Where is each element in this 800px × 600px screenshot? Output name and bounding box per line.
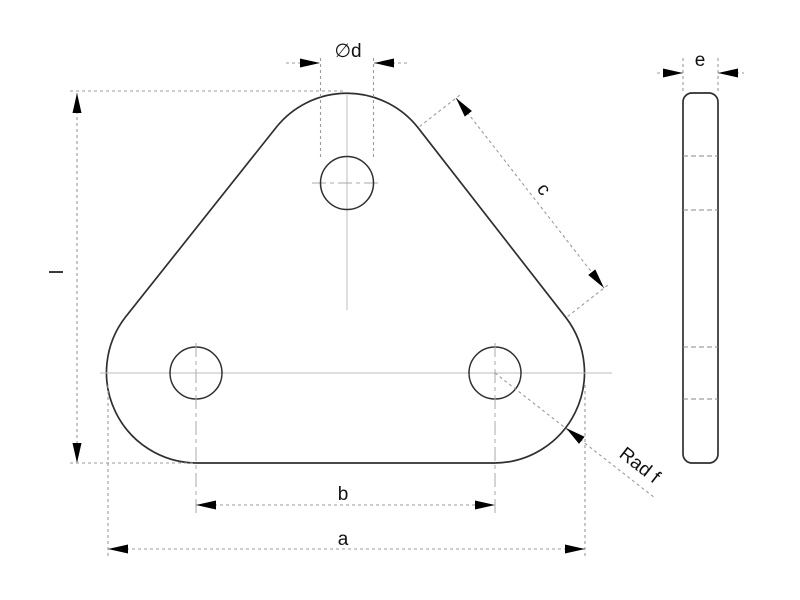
label-edge-length: c bbox=[532, 179, 554, 199]
arrowhead bbox=[565, 545, 585, 554]
arrowhead bbox=[73, 93, 82, 113]
arrowhead bbox=[73, 443, 82, 463]
extension-line bbox=[568, 284, 610, 317]
arrowhead bbox=[300, 59, 320, 68]
arrowhead bbox=[475, 501, 495, 510]
label-corner-radius: Rad f bbox=[615, 443, 664, 488]
dimension-edge-length: c bbox=[420, 94, 610, 317]
plate-outline bbox=[106, 93, 584, 463]
dimension-thickness: e bbox=[657, 50, 744, 91]
dimension-width: a bbox=[108, 385, 585, 556]
arrowhead bbox=[588, 269, 604, 288]
arrowhead bbox=[663, 69, 683, 78]
side-view-outline bbox=[683, 93, 718, 463]
label-hole-spacing: b bbox=[338, 484, 349, 505]
front-view bbox=[100, 93, 612, 463]
arrowhead bbox=[108, 545, 128, 554]
arrowhead bbox=[374, 59, 394, 68]
label-width: a bbox=[338, 529, 349, 550]
drawing-canvas: ∅d e l c bbox=[0, 0, 800, 600]
extension-line bbox=[420, 94, 462, 127]
arrowhead bbox=[456, 98, 472, 117]
dimension-line bbox=[456, 98, 604, 288]
arrowhead bbox=[196, 501, 216, 510]
dimension-corner-radius: Rad f bbox=[495, 373, 664, 498]
dimension-hole-spacing: b bbox=[196, 343, 495, 513]
technical-drawing-page: ∅d e l c bbox=[0, 0, 800, 600]
arrowhead bbox=[718, 69, 738, 78]
side-view bbox=[683, 93, 718, 463]
label-diameter: ∅d bbox=[334, 41, 361, 62]
label-thickness: e bbox=[695, 50, 706, 71]
label-height: l bbox=[47, 270, 68, 274]
